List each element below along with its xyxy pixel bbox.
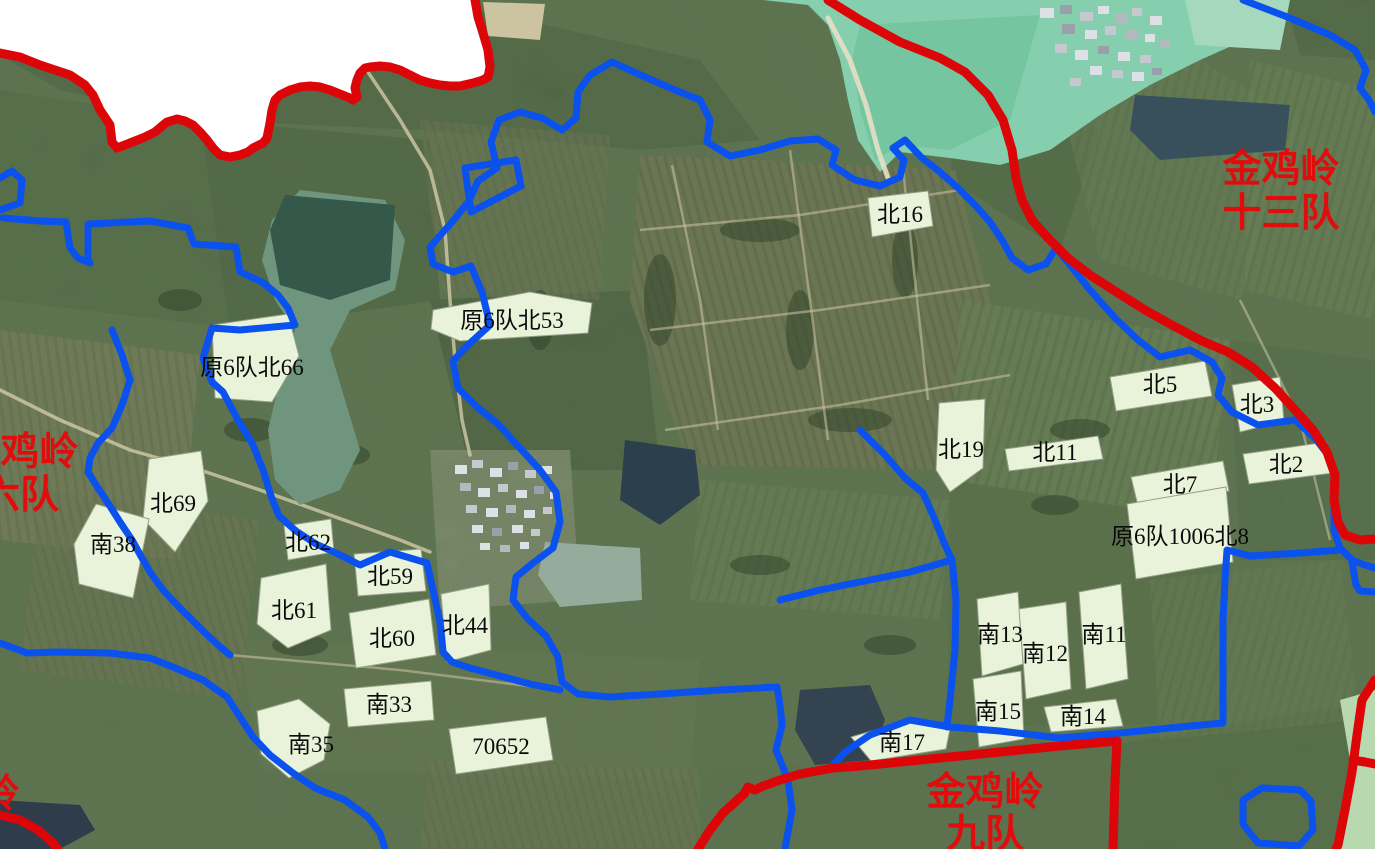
parcel-label-原6队1006北8: 原6队1006北8 — [1111, 524, 1249, 549]
satellite-map[interactable]: 原6队北66原6队北53北16北5北3北19北11北2北7原6队1006北8北6… — [0, 0, 1375, 849]
parcel-label-北2: 北2 — [1269, 452, 1304, 477]
parcel-label-南38: 南38 — [90, 532, 136, 557]
parcel-label-北7: 北7 — [1163, 472, 1198, 497]
parcel-label-北3: 北3 — [1240, 392, 1275, 417]
region-label-1-line-0: 金鸡岭 — [0, 430, 79, 474]
water-ne-shallow — [1185, 0, 1290, 50]
parcel-label-北61: 北61 — [271, 598, 317, 623]
parcel-label-北62: 北62 — [285, 530, 331, 555]
parcel-label-南15: 南15 — [975, 699, 1021, 724]
region-label-0-line-1: 十三队 — [1222, 192, 1340, 235]
parcel-label-南12: 南12 — [1022, 641, 1068, 666]
region-label-3-line-0: 岭 — [0, 773, 20, 816]
region-label-1-line-1: 六队 — [0, 474, 60, 517]
parcel-label-南14: 南14 — [1060, 704, 1107, 729]
parcel-label-南35: 南35 — [288, 732, 334, 757]
parcel-label-北59: 北59 — [367, 564, 413, 589]
parcel-label-南33: 南33 — [366, 692, 412, 717]
parcel-label-北16: 北16 — [877, 202, 923, 227]
satellite-basemap — [0, 0, 1375, 849]
pond-beige — [483, 2, 545, 40]
parcel-label-北44: 北44 — [442, 613, 489, 638]
parcel-label-北19: 北19 — [938, 437, 984, 462]
region-label-0-line-0: 金鸡岭 — [1221, 147, 1339, 191]
parcel-label-南11: 南11 — [1081, 622, 1126, 647]
region-label-2-line-0: 金鸡岭 — [925, 770, 1043, 814]
region-label-2-line-1: 九队 — [946, 813, 1025, 849]
parcel-label-北5: 北5 — [1143, 372, 1178, 397]
parcel-label-原6队北53: 原6队北53 — [460, 308, 564, 333]
parcel-label-原6队北66: 原6队北66 — [200, 355, 304, 380]
parcel-label-北11: 北11 — [1032, 440, 1077, 465]
parcel-label-北69: 北69 — [150, 491, 196, 516]
parcel-label-南17: 南17 — [879, 730, 925, 755]
red-boundary-se-spur — [1353, 760, 1375, 764]
pond-west-upper — [270, 195, 395, 300]
parcel-label-南13: 南13 — [977, 622, 1023, 647]
parcel-label-北60: 北60 — [369, 626, 415, 651]
parcel-label-70652: 70652 — [472, 734, 530, 759]
red-boundary-south-branch — [1113, 741, 1117, 849]
